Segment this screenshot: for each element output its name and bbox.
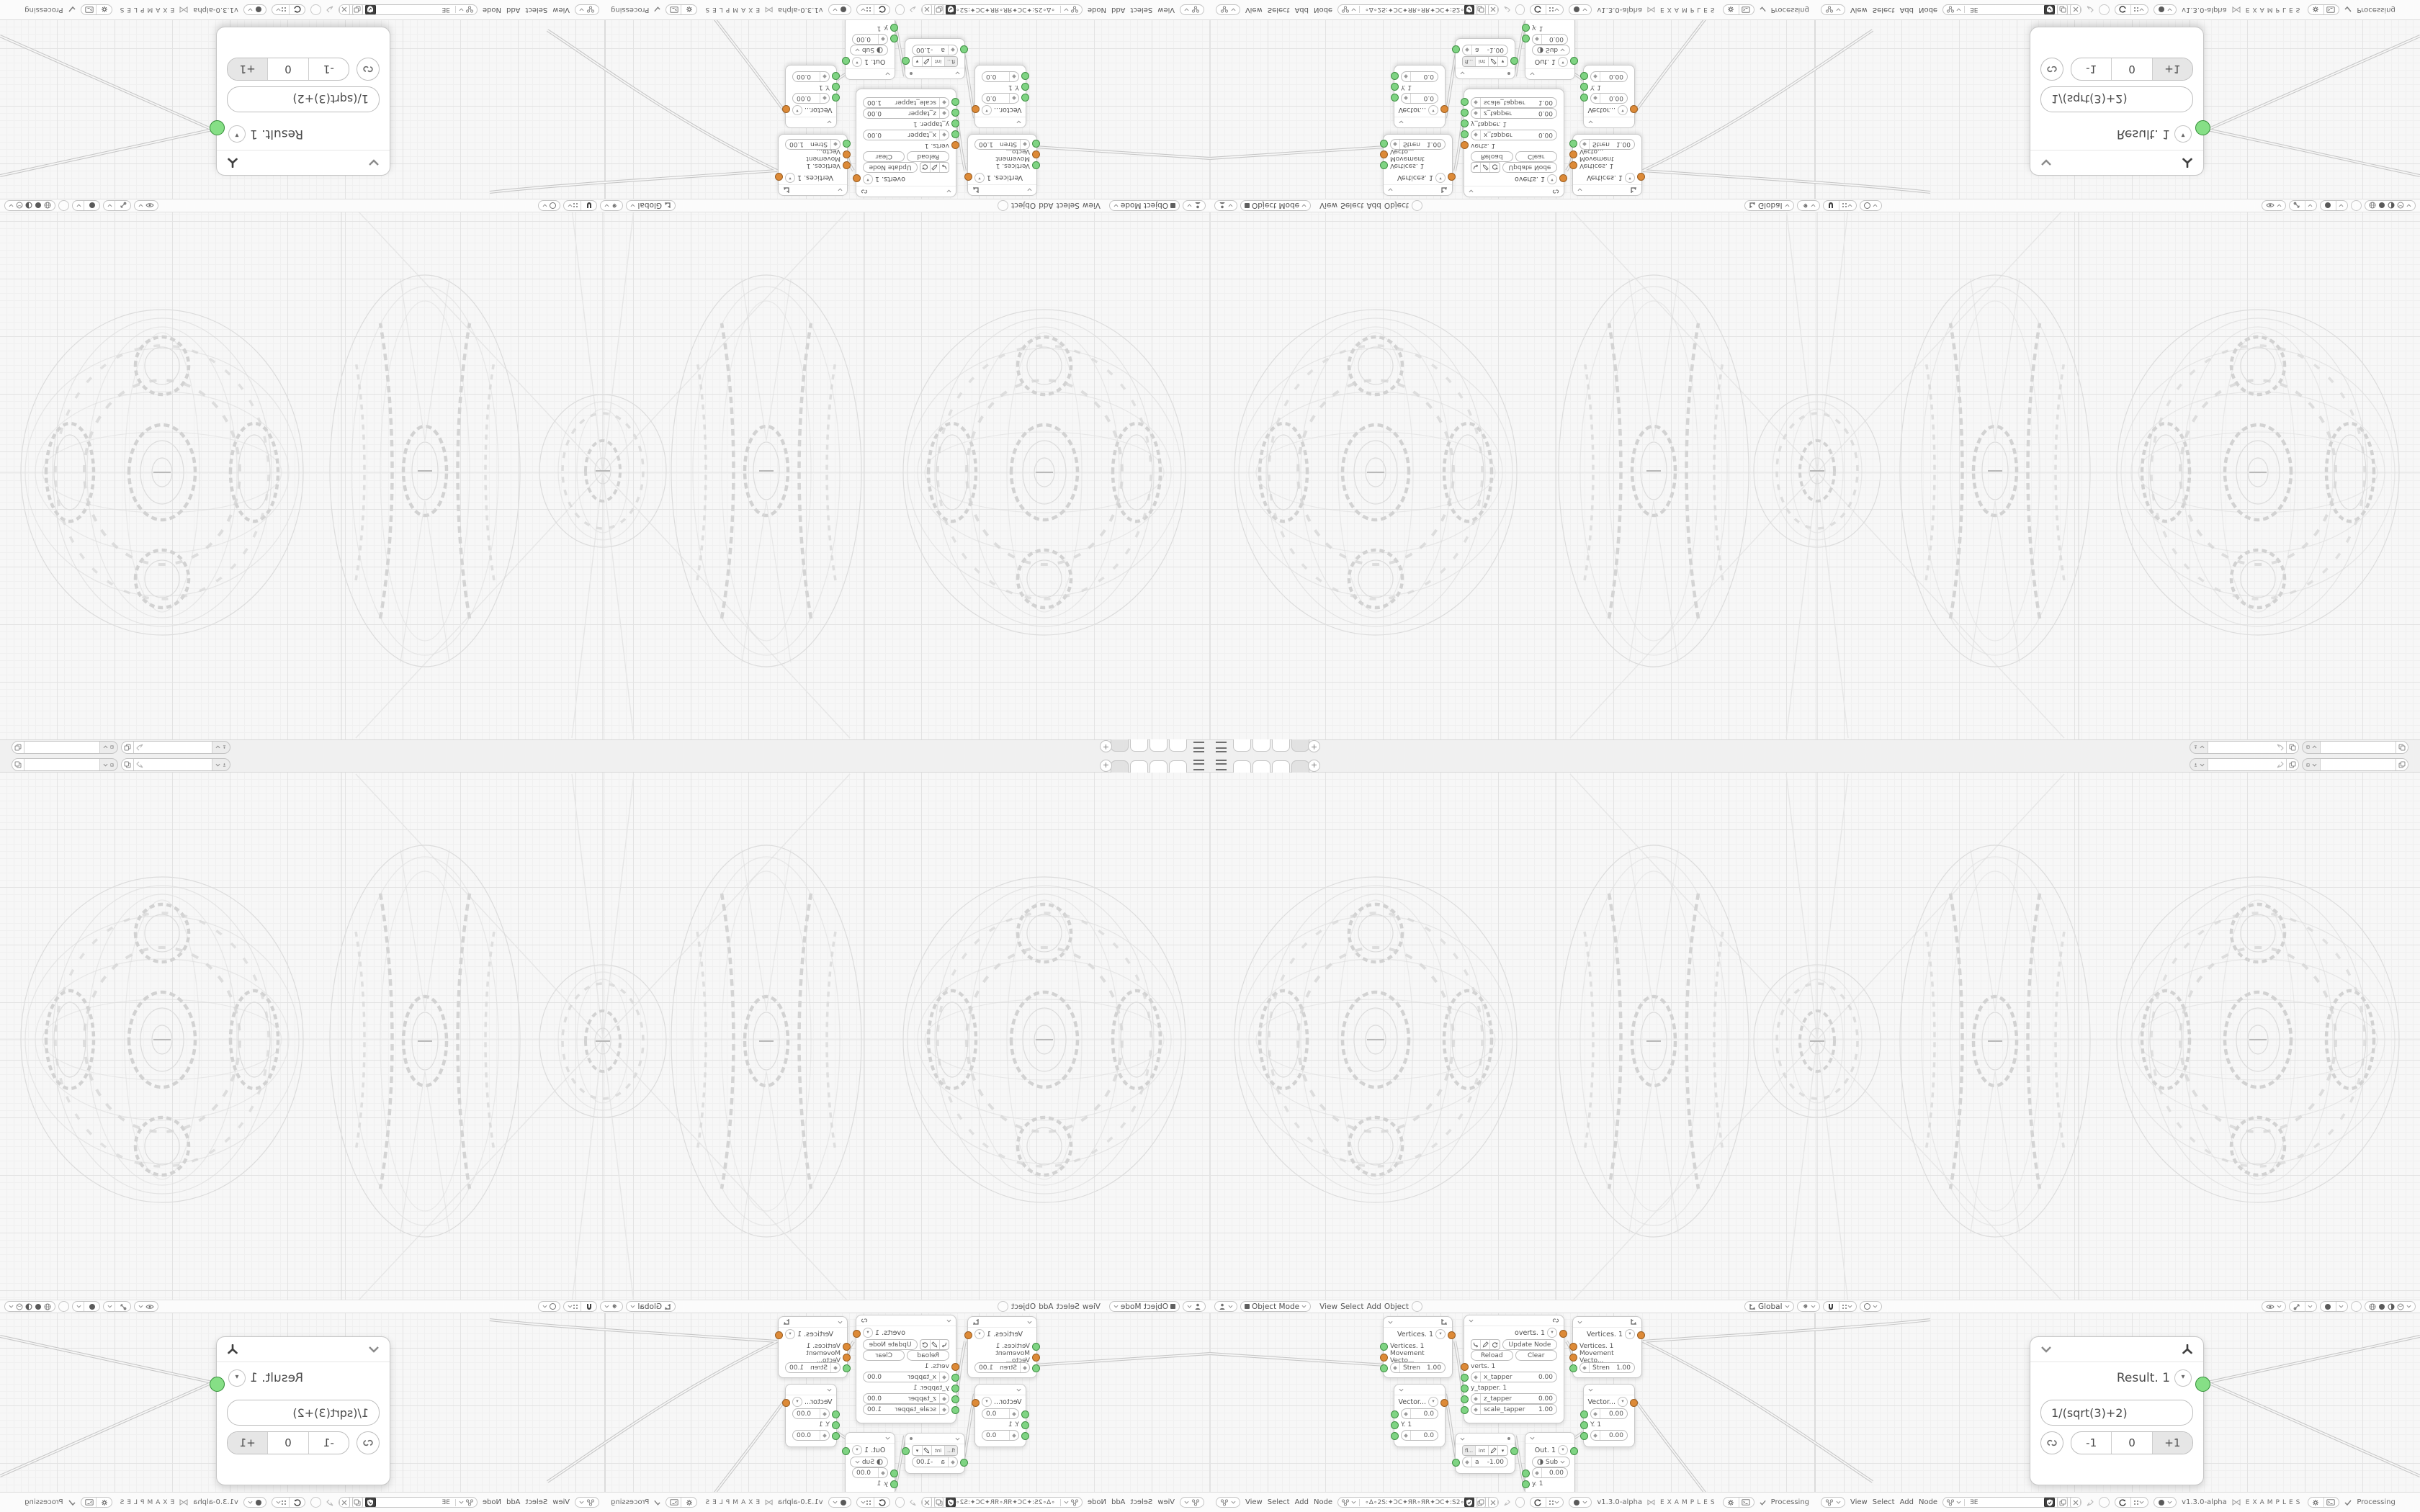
output-socket[interactable] (1510, 57, 1518, 65)
snap-toggle[interactable] (1823, 200, 1857, 211)
overlay-options-button[interactable] (2154, 1497, 2177, 1508)
snap-toggle[interactable] (564, 200, 598, 211)
tab-2[interactable] (1149, 760, 1168, 773)
input-socket[interactable] (1452, 45, 1460, 53)
node-vector-right[interactable]: Vector...▾ 0.00 Y. 1 0.00 (1583, 65, 1635, 128)
node-menu-button[interactable]: ▾ (974, 173, 985, 183)
plus-one-button[interactable]: +1 (2153, 58, 2192, 80)
output-socket[interactable] (1630, 1399, 1638, 1407)
editor-type-button[interactable] (1214, 1301, 1237, 1312)
node-vertices-1[interactable]: Vertices. 1▾ Vertices. 1 Movement Vecto.… (1383, 1316, 1453, 1378)
snapping-toggle[interactable] (895, 1497, 905, 1508)
snap-target-button[interactable] (1797, 1301, 1820, 1312)
z-tapper-slider[interactable]: z_tapper0.00 (1471, 108, 1557, 119)
output-socket[interactable] (853, 1330, 861, 1338)
tree-name-field[interactable]: ∘Δ∘2S:✦ϽC✦ЯR∘ЯR✦ϽC✦:S2∘Δ∘ (958, 1498, 1058, 1507)
output-socket[interactable] (782, 106, 790, 114)
copy-datablock-button[interactable] (2057, 1497, 2068, 1508)
snapping-toggle[interactable] (1515, 1497, 1525, 1508)
vector-z-slider[interactable]: 0.00 (1590, 1430, 1628, 1441)
proportional-editing-toggle[interactable] (1860, 200, 1882, 211)
tools-buttons[interactable] (1723, 4, 1754, 15)
overlays-toggle[interactable] (2320, 1301, 2348, 1312)
clear-button[interactable]: Clear (863, 151, 905, 162)
orbit-options-button[interactable] (856, 1497, 890, 1508)
zero-button[interactable]: 0 (267, 1432, 308, 1454)
vector-z-slider[interactable]: 0.0 (982, 1430, 1019, 1441)
strength-slider[interactable]: Stren1.00 (974, 139, 1030, 150)
gizmo-toggle[interactable] (2289, 1301, 2317, 1312)
vector-z-slider[interactable]: 0.00 (792, 1430, 830, 1441)
snapping-toggle[interactable] (895, 4, 905, 15)
menu-add[interactable]: Add (1900, 6, 1914, 14)
reload-button[interactable]: Reload (907, 151, 950, 162)
input-socket[interactable] (1580, 83, 1588, 91)
node-out-1[interactable]: Out. 1▾ Sub 0.00 y. 1 (845, 1432, 895, 1496)
tab-1[interactable] (1233, 760, 1251, 773)
snapping-toggle[interactable] (1515, 4, 1525, 15)
input-socket[interactable] (832, 72, 840, 80)
vector-x-slider[interactable]: 0.00 (792, 93, 830, 104)
tools-buttons[interactable] (81, 4, 112, 15)
overts-tool-buttons[interactable] (1471, 1339, 1500, 1350)
node-menu-button[interactable]: ▾ (982, 105, 992, 115)
node-result-1[interactable]: Result. 1 ▾ 1/(sqrt(3)+2) -1 0 +1 (216, 1336, 390, 1485)
input-socket[interactable] (951, 1395, 959, 1403)
fake-user-shield-button[interactable] (1464, 1497, 1474, 1508)
result-output-socket[interactable] (210, 120, 225, 135)
node-vertices-1[interactable]: Vertices. 1▾ Vertices. 1 Movement Vecto.… (967, 134, 1037, 196)
output-socket[interactable] (842, 1447, 850, 1455)
strength-slider[interactable]: Stren1.00 (974, 1362, 1030, 1373)
pin-icon[interactable] (910, 6, 916, 14)
id-selector-image[interactable] (12, 741, 118, 754)
minus-one-button[interactable]: -1 (2071, 1432, 2112, 1454)
gizmo-toggle[interactable] (103, 1301, 131, 1312)
tab-1[interactable] (1169, 760, 1187, 773)
orbit-options-button[interactable] (2115, 4, 2148, 15)
vector-z-slider[interactable]: 0.0 (1401, 71, 1438, 82)
a-slider[interactable]: a-1.00 (912, 1457, 958, 1467)
transform-orientation-dropdown[interactable]: Global (1744, 1301, 1794, 1312)
expression-field[interactable]: 1/(sqrt(3)+2) (2040, 86, 2193, 112)
x-tapper-slider[interactable]: x_tapper0.00 (1471, 130, 1557, 140)
reload-button[interactable]: Reload (1471, 151, 1513, 162)
link-toggle-button[interactable] (357, 1431, 380, 1454)
input-socket[interactable] (832, 94, 840, 102)
input-socket[interactable] (1461, 1395, 1469, 1403)
input-socket[interactable] (1380, 1354, 1388, 1362)
fake-user-shield-button[interactable] (365, 1497, 376, 1508)
tree-name-field[interactable]: ∘Δ∘2S:✦ϽC✦ЯR∘ЯR✦ϽC✦:S2∘Δ∘ (1362, 1498, 1462, 1507)
snapping-toggle[interactable] (310, 4, 321, 15)
add-tab-button[interactable]: + (1308, 740, 1320, 752)
node-math[interactable]: fl... int ▾ a-1.00 (905, 1433, 965, 1474)
node-menu-button[interactable]: ▾ (1618, 105, 1628, 115)
node-menu-button[interactable]: ▾ (863, 1328, 873, 1338)
expression-field[interactable]: 1/(sqrt(3)+2) (2040, 1400, 2193, 1426)
zero-button[interactable]: 0 (2112, 58, 2152, 80)
transform-orientation-dropdown[interactable]: Global (627, 200, 676, 211)
menu-view[interactable]: View (1319, 1302, 1337, 1311)
tree-datablock-selector[interactable]: ∘Δ∘2S:✦ϽC✦ЯR∘ЯR✦ϽC✦:S2∘Δ∘ (921, 4, 1082, 15)
input-socket[interactable] (1021, 1421, 1029, 1429)
math-type-buttons[interactable]: fl... int ▾ (912, 56, 958, 67)
editor-type-button[interactable] (1214, 200, 1237, 211)
input-socket[interactable] (843, 1364, 851, 1372)
xray-toggle[interactable] (58, 200, 69, 211)
input-socket[interactable] (1461, 130, 1469, 138)
input-socket[interactable] (1021, 1432, 1029, 1440)
xray-toggle[interactable] (2351, 1301, 2362, 1312)
tree-name-field[interactable]: ƎE (378, 1498, 453, 1507)
output-socket[interactable] (1559, 1330, 1567, 1338)
out-value-slider[interactable]: 0.00 (1532, 34, 1568, 45)
unlink-datablock-button[interactable] (2070, 1497, 2081, 1508)
mode-dropdown[interactable]: Object Mode (1109, 1301, 1180, 1312)
tree-name-field[interactable]: ƎE (378, 5, 453, 14)
editor-type-button[interactable] (575, 4, 599, 15)
node-vertices-1-b[interactable]: Vertices. 1▾ Vertices. 1 Movement Vecto.… (778, 1316, 848, 1378)
vector-z-slider[interactable]: 0.0 (982, 71, 1019, 82)
node-overts-1[interactable]: overts. 1▾ Update Node Reload Clear vert… (856, 1315, 956, 1423)
input-socket[interactable] (832, 1421, 840, 1429)
update-node-button[interactable]: Update Node (1502, 1339, 1557, 1350)
input-socket[interactable] (1522, 24, 1530, 32)
menu-add[interactable]: Add (506, 6, 520, 14)
input-socket[interactable] (1522, 35, 1530, 42)
snapping-toggle[interactable] (310, 1497, 321, 1508)
unlink-datablock-button[interactable] (339, 1497, 350, 1508)
id-selector-armature[interactable] (2190, 758, 2299, 771)
menu-select[interactable]: Select (1873, 6, 1895, 14)
tab-4-active[interactable] (1291, 760, 1309, 773)
editor-type-button[interactable] (1216, 1497, 1240, 1508)
input-socket[interactable] (1032, 1364, 1040, 1372)
output-socket[interactable] (1440, 1399, 1448, 1407)
mode-transfer-button[interactable] (998, 1301, 1008, 1312)
menu-hamburger-icon[interactable] (1216, 742, 1227, 752)
out-value-slider[interactable]: 0.00 (852, 1467, 888, 1478)
result-output-socket[interactable] (2195, 120, 2210, 135)
node-menu-button[interactable]: ▾ (863, 174, 873, 184)
node-overts-1[interactable]: overts. 1▾ Update Node Reload Clear vert… (1464, 1315, 1564, 1423)
strength-slider[interactable]: Stren1.00 (1390, 1362, 1446, 1373)
input-socket[interactable] (890, 1470, 898, 1477)
view-object-types-button[interactable] (134, 1301, 158, 1312)
add-tab-button[interactable]: + (1308, 760, 1320, 772)
strength-slider[interactable]: Stren1.00 (1390, 139, 1446, 150)
node-vertices-1-b[interactable]: Vertices. 1▾ Vertices. 1 Movement Vecto.… (778, 134, 848, 196)
node-vertices-1-b[interactable]: Vertices. 1▾ Vertices. 1 Movement Vecto.… (1572, 1316, 1642, 1378)
menu-view[interactable]: View (1850, 6, 1868, 14)
input-socket[interactable] (1021, 72, 1029, 80)
input-socket[interactable] (890, 24, 898, 32)
menu-select[interactable]: Select (1873, 1498, 1895, 1506)
math-type-buttons[interactable]: fl... int ▾ (1462, 1445, 1508, 1456)
tree-datablock-selector[interactable]: ∘Δ∘2S:✦ϽC✦ЯR∘ЯR✦ϽC✦:S2∘Δ∘ (1337, 1497, 1498, 1508)
input-socket[interactable] (832, 83, 840, 91)
tree-datablock-selector[interactable]: ƎE (339, 4, 478, 15)
editor-type-button[interactable] (1216, 4, 1240, 15)
menu-select[interactable]: Select (525, 1498, 547, 1506)
transform-orientation-dropdown[interactable]: Global (627, 1301, 676, 1312)
menu-select[interactable]: Select (1057, 1302, 1080, 1311)
xray-toggle[interactable] (58, 1301, 69, 1312)
editor-type-button[interactable] (1821, 4, 1845, 15)
tab-1[interactable] (1169, 739, 1187, 752)
input-socket[interactable] (1032, 1343, 1040, 1351)
input-socket[interactable] (951, 1385, 959, 1392)
menu-hamburger-icon[interactable] (1193, 742, 1204, 752)
menu-view[interactable]: View (1083, 1302, 1101, 1311)
menu-select[interactable]: Select (1130, 1498, 1152, 1506)
node-menu-button[interactable]: ▾ (1428, 1397, 1438, 1407)
output-socket[interactable] (902, 1447, 910, 1455)
node-out-1[interactable]: Out. 1▾ Sub 0.00 y. 1 (1525, 1432, 1575, 1496)
view-object-types-button[interactable] (2262, 1301, 2286, 1312)
input-socket[interactable] (1391, 1410, 1399, 1418)
snap-toggle[interactable] (1823, 1301, 1857, 1312)
input-socket[interactable] (1461, 1406, 1469, 1414)
zero-button[interactable]: 0 (2112, 1432, 2152, 1454)
scale-tapper-slider[interactable]: scale_tapper1.00 (1471, 97, 1557, 108)
fake-user-shield-button[interactable] (365, 4, 376, 15)
input-socket[interactable] (1380, 161, 1388, 169)
fake-user-shield-button[interactable] (2044, 1497, 2055, 1508)
pin-icon[interactable] (1504, 6, 1510, 14)
node-math[interactable]: fl... int ▾ a-1.00 (1455, 1433, 1515, 1474)
out-value-slider[interactable]: 0.00 (1532, 1467, 1568, 1478)
strength-slider[interactable]: Stren1.00 (1579, 139, 1635, 150)
plus-one-button[interactable]: +1 (2153, 1432, 2192, 1454)
proportional-editing-toggle[interactable] (539, 200, 561, 211)
id-selector-armature[interactable] (2190, 741, 2299, 754)
menu-object[interactable]: Object (1384, 202, 1409, 210)
overlay-options-button[interactable] (243, 1497, 266, 1508)
editor-type-button[interactable] (575, 1497, 599, 1508)
menu-add[interactable]: Add (1111, 6, 1125, 14)
input-socket[interactable] (1032, 140, 1040, 148)
strength-slider[interactable]: Stren1.00 (785, 1362, 841, 1373)
node-menu-button[interactable]: ▾ (1435, 173, 1446, 183)
input-socket[interactable] (832, 1432, 840, 1440)
input-socket[interactable] (1380, 1343, 1388, 1351)
menu-node[interactable]: Node (1919, 6, 1937, 14)
overlay-options-button[interactable] (1569, 1497, 1592, 1508)
menu-node[interactable]: Node (1314, 6, 1332, 14)
menu-object[interactable]: Object (1011, 1302, 1036, 1311)
result-menu-button[interactable]: ▾ (228, 1369, 246, 1387)
id-selector-armature[interactable] (121, 741, 230, 754)
node-vector-right[interactable]: Vector...▾ 0.00 Y. 1 0.00 (785, 1384, 837, 1447)
tab-2[interactable] (1149, 739, 1168, 752)
node-menu-button[interactable]: ▾ (1558, 1445, 1568, 1455)
result-menu-button[interactable]: ▾ (2174, 1369, 2192, 1387)
input-socket[interactable] (951, 120, 959, 127)
output-socket[interactable] (964, 174, 972, 181)
minus-one-button[interactable]: -1 (308, 58, 349, 80)
node-result-1[interactable]: Result. 1 ▾ 1/(sqrt(3)+2) -1 0 +1 (216, 27, 390, 176)
editor-type-button[interactable] (1183, 200, 1206, 211)
node-vector-right[interactable]: Vector...▾ 0.00 Y. 1 0.00 (1583, 1384, 1635, 1447)
node-vertices-1[interactable]: Vertices. 1▾ Vertices. 1 Movement Vecto.… (967, 1316, 1037, 1378)
input-socket[interactable] (832, 1410, 840, 1418)
input-socket[interactable] (890, 35, 898, 42)
vector-x-slider[interactable]: 0.00 (792, 1408, 830, 1419)
add-tab-button[interactable]: + (1100, 740, 1112, 752)
operation-dropdown[interactable]: Sub (1532, 45, 1570, 55)
clear-button[interactable]: Clear (1515, 151, 1558, 162)
menu-view[interactable]: View (552, 6, 570, 14)
vector-x-slider[interactable]: 0.00 (1590, 93, 1628, 104)
tree-name-field[interactable]: ∘Δ∘2S:✦ϽC✦ЯR∘ЯR✦ϽC✦:S2∘Δ∘ (1362, 5, 1462, 14)
node-vector-left[interactable]: Vector...▾ 0.0 Y. 1 0.0 (974, 1384, 1026, 1447)
update-node-button[interactable]: Update Node (863, 162, 918, 173)
editor-type-button[interactable] (1180, 4, 1204, 15)
editor-type-button[interactable] (1180, 1497, 1204, 1508)
overlay-options-button[interactable] (2154, 4, 2177, 15)
input-socket[interactable] (1580, 1432, 1588, 1440)
node-result-1[interactable]: Result. 1 ▾ 1/(sqrt(3)+2) -1 0 +1 (2030, 27, 2204, 176)
input-socket[interactable] (951, 141, 959, 149)
mode-transfer-button[interactable] (1412, 200, 1422, 211)
snapping-toggle[interactable] (2099, 4, 2110, 15)
pin-icon[interactable] (1504, 1499, 1510, 1506)
snapping-toggle[interactable] (2099, 1497, 2110, 1508)
node-menu-button[interactable]: ▾ (792, 105, 802, 115)
menu-add[interactable]: Add (1039, 1302, 1053, 1311)
node-menu-button[interactable]: ▾ (785, 1329, 795, 1339)
result-menu-button[interactable]: ▾ (2174, 125, 2192, 143)
overts-tool-buttons[interactable] (920, 1339, 949, 1350)
xray-toggle[interactable] (2351, 200, 2362, 211)
overts-tool-buttons[interactable] (920, 162, 949, 173)
menu-view[interactable]: View (1850, 1498, 1868, 1506)
view-object-types-button[interactable] (134, 200, 158, 211)
menu-hamburger-icon[interactable] (1193, 760, 1204, 770)
mode-dropdown[interactable]: Object Mode (1240, 1301, 1311, 1312)
pin-icon[interactable] (2087, 6, 2094, 14)
input-socket[interactable] (1461, 120, 1469, 127)
tools-buttons[interactable] (81, 1497, 112, 1508)
result-output-socket[interactable] (2195, 1377, 2210, 1392)
node-menu-button[interactable]: ▾ (1618, 1397, 1628, 1407)
proportional-editing-toggle[interactable] (1860, 1301, 1882, 1312)
id-selector-image[interactable] (2302, 741, 2408, 754)
update-node-button[interactable]: Update Node (863, 1339, 918, 1350)
tab-4-active[interactable] (1111, 739, 1129, 752)
menu-node[interactable]: Node (483, 1498, 501, 1506)
input-socket[interactable] (1461, 141, 1469, 149)
input-socket[interactable] (960, 45, 968, 53)
a-slider[interactable]: a-1.00 (912, 45, 958, 55)
proportional-editing-toggle[interactable] (539, 1301, 561, 1312)
x-tapper-slider[interactable]: x_tapper0.00 (863, 130, 949, 140)
input-socket[interactable] (1580, 94, 1588, 102)
input-socket[interactable] (1452, 1459, 1460, 1467)
tab-3[interactable] (1130, 739, 1148, 752)
result-output-socket[interactable] (210, 1377, 225, 1392)
node-vector-right[interactable]: Vector...▾ 0.00 Y. 1 0.00 (785, 65, 837, 128)
input-socket[interactable] (1522, 1480, 1530, 1488)
node-menu-button[interactable]: ▾ (852, 1445, 862, 1455)
shading-mode-buttons[interactable] (2365, 200, 2416, 211)
menu-select[interactable]: Select (1340, 1302, 1363, 1311)
input-socket[interactable] (843, 150, 851, 158)
tab-3[interactable] (1272, 739, 1290, 752)
input-socket[interactable] (843, 1343, 851, 1351)
input-socket[interactable] (1380, 140, 1388, 148)
input-socket[interactable] (1461, 1374, 1469, 1382)
node-menu-button[interactable]: ▾ (1558, 57, 1568, 67)
scale-tapper-slider[interactable]: scale_tapper1.00 (863, 1404, 949, 1415)
update-node-button[interactable]: Update Node (1502, 162, 1557, 173)
orbit-options-button[interactable] (1530, 1497, 1564, 1508)
menu-add[interactable]: Add (1295, 6, 1309, 14)
x-tapper-slider[interactable]: x_tapper0.00 (1471, 1372, 1557, 1382)
input-socket[interactable] (1380, 1364, 1388, 1372)
node-menu-button[interactable]: ▾ (974, 1329, 985, 1339)
orbit-options-button[interactable] (856, 4, 890, 15)
copy-datablock-button[interactable] (934, 1497, 944, 1508)
tools-buttons[interactable] (665, 4, 697, 15)
input-socket[interactable] (1569, 150, 1577, 158)
link-toggle-button[interactable] (2040, 58, 2063, 81)
output-socket[interactable] (775, 174, 783, 181)
scale-tapper-slider[interactable]: scale_tapper1.00 (863, 97, 949, 108)
node-menu-button[interactable]: ▾ (852, 57, 862, 67)
output-socket[interactable] (1570, 1447, 1578, 1455)
expression-field[interactable]: 1/(sqrt(3)+2) (227, 1400, 380, 1426)
node-overts-1[interactable]: overts. 1▾ Update Node Reload Clear vert… (856, 89, 956, 197)
menu-hamburger-icon[interactable] (1216, 760, 1227, 770)
tab-2[interactable] (1252, 739, 1270, 752)
operation-dropdown[interactable]: Sub (1532, 1457, 1570, 1467)
menu-add[interactable]: Add (506, 1498, 520, 1506)
math-type-buttons[interactable]: fl... int ▾ (912, 1445, 958, 1456)
plus-one-button[interactable]: +1 (228, 1432, 267, 1454)
overlays-toggle[interactable] (72, 200, 100, 211)
fake-user-shield-button[interactable] (946, 4, 955, 15)
tools-buttons[interactable] (665, 1497, 697, 1508)
menu-select[interactable]: Select (1340, 202, 1363, 210)
vector-x-slider[interactable]: 0.0 (982, 93, 1019, 104)
input-socket[interactable] (1032, 150, 1040, 158)
tab-4-active[interactable] (1291, 739, 1309, 752)
input-socket[interactable] (1032, 161, 1040, 169)
copy-datablock-button[interactable] (1476, 1497, 1486, 1508)
menu-node[interactable]: Node (1314, 1498, 1332, 1506)
node-menu-button[interactable]: ▾ (1435, 1329, 1446, 1339)
menu-view[interactable]: View (1157, 6, 1175, 14)
mode-dropdown[interactable]: Object Mode (1240, 200, 1311, 211)
tree-name-field[interactable]: ∘Δ∘2S:✦ϽC✦ЯR∘ЯR✦ϽC✦:S2∘Δ∘ (958, 5, 1058, 14)
fake-user-shield-button[interactable] (2044, 4, 2055, 15)
plus-one-button[interactable]: +1 (228, 58, 267, 80)
node-menu-button[interactable]: ▾ (1625, 1329, 1635, 1339)
tools-buttons[interactable] (1723, 1497, 1754, 1508)
output-socket[interactable] (775, 1331, 783, 1339)
input-socket[interactable] (1580, 72, 1588, 80)
a-slider[interactable]: a-1.00 (1462, 45, 1508, 55)
input-socket[interactable] (1461, 98, 1469, 106)
mode-transfer-button[interactable] (1412, 1301, 1422, 1312)
overts-tool-buttons[interactable] (1471, 162, 1500, 173)
input-socket[interactable] (843, 1354, 851, 1362)
node-menu-button[interactable]: ▾ (1547, 1328, 1557, 1338)
input-socket[interactable] (1391, 1421, 1399, 1429)
